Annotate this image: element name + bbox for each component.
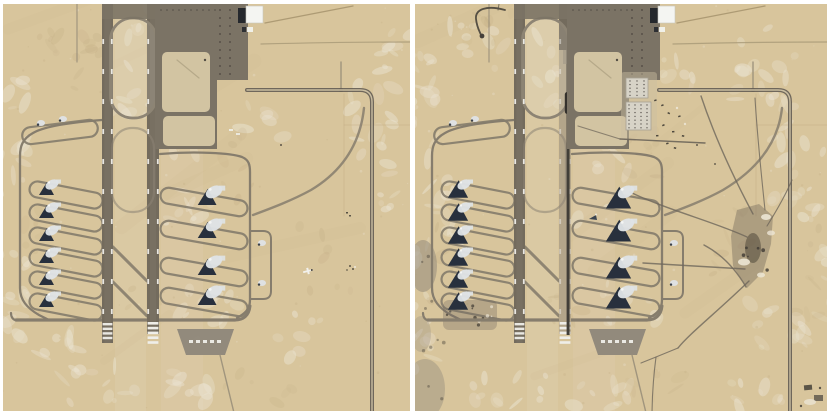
disturbed-patch: [443, 300, 497, 330]
satellite-comparison: [0, 0, 830, 415]
satellite-panel-left: [3, 4, 410, 411]
satellite-image-right: [415, 4, 827, 411]
satellite-panel-right: [415, 4, 827, 411]
satellite-image-left: [3, 4, 410, 411]
